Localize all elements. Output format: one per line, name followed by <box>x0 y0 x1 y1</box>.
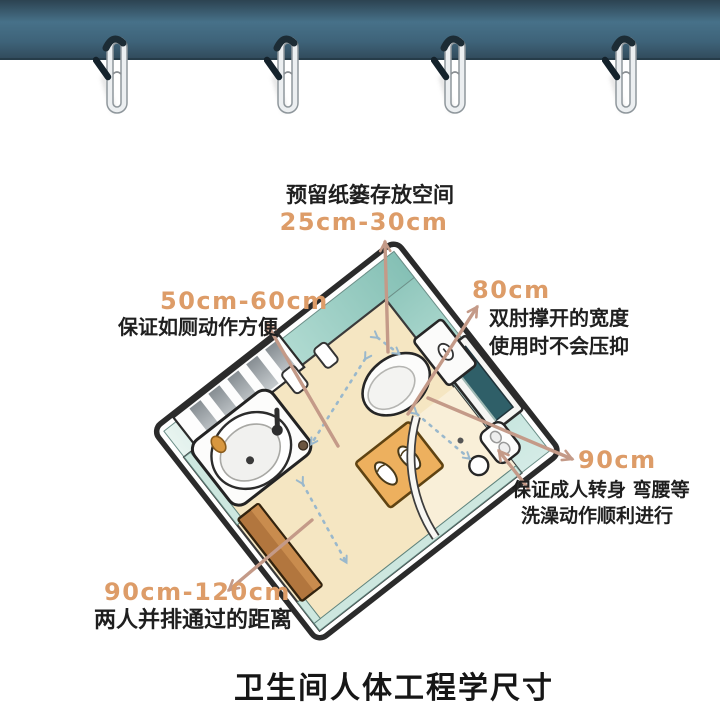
label-passage-width: 两人并排通过的距离 <box>94 608 292 633</box>
value-shower-turning: 90cm <box>578 447 657 475</box>
label-toilet-clearance: 保证如厕动作方便 <box>118 316 278 339</box>
label-shower-turning-line2: 洗澡动作顺利进行 <box>521 506 673 528</box>
label-shower-turning-line1: 保证成人转身 弯腰等 <box>512 480 690 502</box>
page-title: 卫生间人体工程学尺寸 <box>234 663 554 707</box>
value-toilet-clearance: 50cm-60cm <box>160 288 329 316</box>
infographic-canvas: 预留纸篓存放空间 25cm-30cm 50cm-60cm 保证如厕动作方便 80… <box>0 0 720 720</box>
value-paper-storage: 25cm-30cm <box>280 209 449 237</box>
value-passage-width: 90cm-120cm <box>104 579 291 607</box>
value-elbow-width: 80cm <box>472 277 551 305</box>
label-paper-storage: 预留纸篓存放空间 <box>286 183 454 207</box>
label-elbow-width-line2: 使用时不会压抑 <box>489 335 629 358</box>
label-elbow-width-line1: 双肘撑开的宽度 <box>489 307 629 330</box>
